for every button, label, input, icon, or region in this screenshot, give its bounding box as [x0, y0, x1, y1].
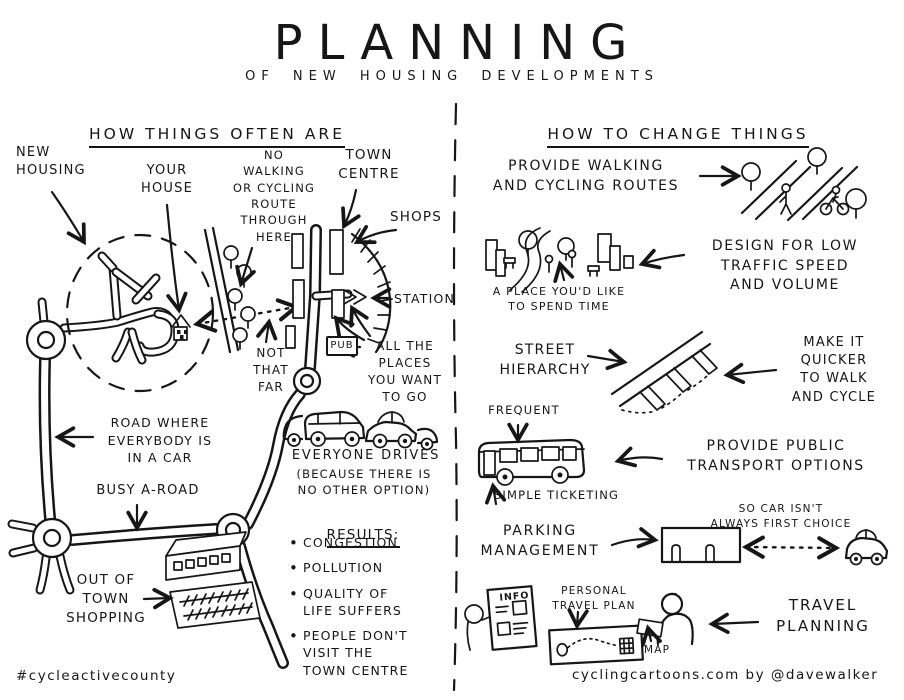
label-not-that-far: NOT THAT FAR [242, 345, 300, 395]
label-no-route: NO WALKING OR CYCLING ROUTE THROUGH HERE [224, 147, 324, 245]
result-item: CONGESTION [288, 534, 446, 551]
label-street-hierarchy: STREET HIERARCHY [480, 341, 610, 380]
result-item: POLLUTION [288, 559, 446, 576]
right-column-header: HOW TO CHANGE THINGS [547, 125, 808, 148]
result-item: QUALITY OF LIFE SUFFERS [288, 585, 446, 620]
label-frequent: FREQUENT [478, 402, 570, 418]
label-design-low-traffic: DESIGN FOR LOW TRAFFIC SPEED AND VOLUME [690, 237, 880, 296]
label-provide-walking: PROVIDE WALKING AND CYCLING ROUTES [476, 157, 696, 196]
label-out-of-town: OUT OF TOWN SHOPPING [52, 571, 160, 628]
housing-estate-streets [64, 256, 175, 360]
label-so-car: SO CAR ISN'T ALWAYS FIRST CHOICE [700, 502, 862, 531]
result-item: PEOPLE DON'T VISIT THE TOWN CENTRE [288, 627, 446, 679]
footer-hashtag: #cycleactivecounty [16, 667, 276, 686]
page-subtitle: OF NEW HOUSING DEVELOPMENTS [0, 68, 904, 86]
pub-sign: PUB [326, 336, 358, 356]
label-simple-ticketing: SIMPLE TICKETING [474, 487, 639, 503]
nice-place-icon [486, 228, 633, 292]
footer-credit: cyclingcartoons.com by @davewalker [572, 666, 902, 685]
cartoon-page: .s{stroke:#161616;stroke-width:2.2;fill:… [0, 0, 904, 700]
parking-icon [662, 528, 887, 565]
bus-icon [479, 440, 584, 485]
label-travel-planning: TRAVEL PLANNING [764, 595, 882, 637]
label-shops: SHOPS [380, 208, 452, 227]
label-station: STATION [394, 290, 474, 308]
left-column-header: HOW THINGS OFTEN ARE [89, 125, 345, 148]
label-personal-travel-plan: PERSONAL TRAVEL PLAN [538, 584, 650, 613]
label-busy-a-road: BUSY A-ROAD [86, 482, 210, 500]
walking-cycling-routes-icon [742, 148, 866, 220]
right-column-header-wrap: HOW TO CHANGE THINGS [538, 106, 818, 145]
label-town-centre: TOWN CENTRE [325, 146, 413, 184]
label-map: MAP [644, 643, 684, 658]
label-road-everybody: ROAD WHERE EVERYBODY IS IN A CAR [94, 414, 226, 467]
label-everyone-drives: EVERYONE DRIVES [286, 447, 446, 465]
label-parking-management: PARKING MANAGEMENT [464, 522, 616, 561]
label-make-it-quicker: MAKE IT QUICKER TO WALK AND CYCLE [780, 334, 888, 407]
label-place-spend-time: A PLACE YOU'D LIKE TO SPEND TIME [474, 284, 644, 315]
tree-lined-strip [205, 228, 255, 352]
label-new-housing: NEW HOUSING [16, 144, 106, 180]
results-list: CONGESTION POLLUTION QUALITY OF LIFE SUF… [288, 534, 446, 687]
label-everyone-drives-note: (BECAUSE THERE IS NO OTHER OPTION) [278, 466, 450, 498]
railway-line [352, 229, 392, 352]
label-your-house: YOUR HOUSE [128, 162, 206, 198]
label-all-places: ALL THE PLACES YOU WANT TO GO [362, 338, 448, 406]
label-public-transport: PROVIDE PUBLIC TRANSPORT OPTIONS [668, 437, 884, 476]
left-column-header-wrap: HOW THINGS OFTEN ARE [62, 106, 372, 145]
street-hierarchy-icon [612, 332, 717, 413]
column-divider [454, 104, 457, 690]
cars-row [284, 412, 437, 450]
